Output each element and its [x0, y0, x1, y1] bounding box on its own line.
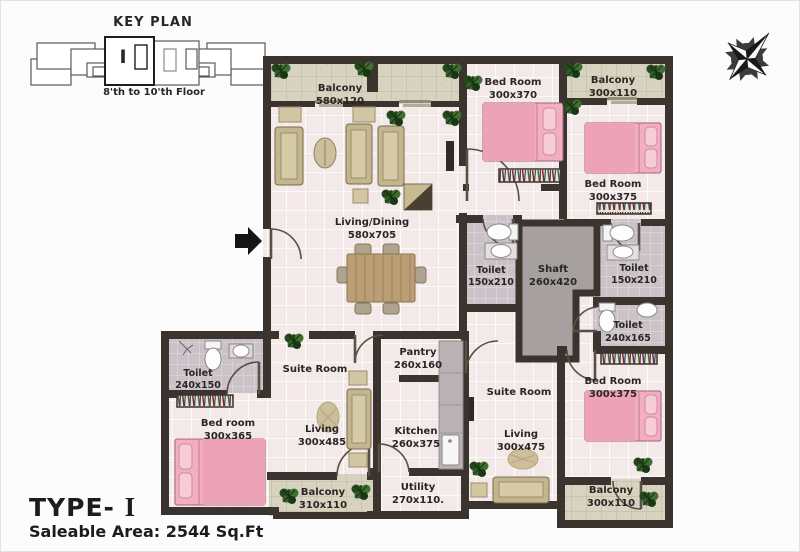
key-plan-title: KEY PLAN: [113, 15, 193, 30]
key-plan-unit-mark: I: [119, 46, 126, 68]
label-living-dining: Living/Dining: [335, 217, 409, 228]
type-title: TYPE- I: [29, 493, 263, 521]
dims-bedroom-right: 300x375: [589, 192, 637, 203]
key-plan-unit-core: [135, 45, 147, 69]
label-bedroom-top: Bed Room: [485, 77, 542, 88]
label-suite-left: Suite Room: [283, 364, 348, 375]
label-bedroom-bottom-left: Bed room: [201, 418, 255, 429]
dims-living-left: 300x485: [298, 437, 346, 448]
label-kitchen: Kitchen: [395, 426, 438, 437]
label-bedroom-bottom-right: Bed Room: [585, 376, 642, 387]
dims-shaft: 260x420: [529, 277, 577, 288]
dims-pantry: 260x160: [394, 360, 442, 371]
dims-bedroom-top: 300x370: [489, 90, 537, 101]
type-prefix: TYPE-: [29, 493, 125, 522]
dims-kitchen: 260x375: [392, 439, 440, 450]
bed-top-bedroom: [483, 103, 563, 161]
type-roman-numeral: I: [125, 492, 137, 522]
floorplan-drawing: KEY PLAN I 8'th to 10'th Floor: [1, 1, 800, 552]
label-toilet-bottom-left: Toilet: [183, 368, 213, 379]
floorplan-page: KEY PLAN I 8'th to 10'th Floor: [0, 0, 800, 552]
compass-rose-icon: [710, 17, 788, 96]
label-balcony-top: Balcony: [318, 83, 363, 94]
label-balcony-bottom-left: Balcony: [301, 487, 346, 498]
dims-balcony-top-right: 300x110: [589, 88, 637, 99]
label-balcony-bottom-right: Balcony: [589, 485, 634, 496]
dims-bedroom-bottom-right: 300x375: [589, 389, 637, 400]
key-plan: KEY PLAN I 8'th to 10'th Floor: [31, 15, 271, 98]
label-pantry: Pantry: [399, 347, 437, 358]
label-toilet-mid-right: Toilet: [619, 263, 649, 274]
dims-living-dining: 580x705: [348, 230, 396, 241]
floor-plan: Balcony 580x120 Bed Room 300x370 Balcony…: [161, 56, 673, 528]
dims-toilet-bottom-left: 240x150: [175, 380, 221, 391]
dims-balcony-bottom-left: 310x110: [299, 500, 347, 511]
label-bedroom-right: Bed Room: [585, 179, 642, 190]
label-living-left: Living: [305, 424, 339, 435]
dims-toilet-mid-left: 150x210: [468, 277, 514, 288]
entry-arrow-icon: [235, 227, 262, 255]
dims-utility: 270x110.: [392, 495, 444, 506]
label-shaft: Shaft: [538, 264, 568, 275]
label-suite-right: Suite Room: [487, 387, 552, 398]
dims-balcony-top: 580x120: [316, 96, 364, 107]
label-balcony-top-right: Balcony: [591, 75, 636, 86]
kitchen-counter: [439, 341, 463, 469]
key-plan-floors-label: 8'th to 10'th Floor: [103, 87, 205, 98]
dims-bedroom-bottom-left: 300x365: [204, 431, 252, 442]
label-toilet-right-lower: Toilet: [613, 320, 643, 331]
dims-toilet-mid-right: 150x210: [611, 275, 657, 286]
tv-icon: [469, 397, 474, 421]
label-utility: Utility: [401, 482, 436, 493]
label-toilet-mid-left: Toilet: [476, 265, 506, 276]
dims-living-right: 300x475: [497, 442, 545, 453]
bed-right-bedroom: [585, 123, 661, 173]
dims-balcony-bottom-right: 300x110: [587, 498, 635, 509]
plan-footer: TYPE- I Saleable Area: 2544 Sq.Ft: [29, 493, 263, 541]
dims-toilet-right-lower: 240x165: [605, 333, 651, 344]
label-living-right: Living: [504, 429, 538, 440]
saleable-area-label: Saleable Area: 2544 Sq.Ft: [29, 522, 263, 541]
